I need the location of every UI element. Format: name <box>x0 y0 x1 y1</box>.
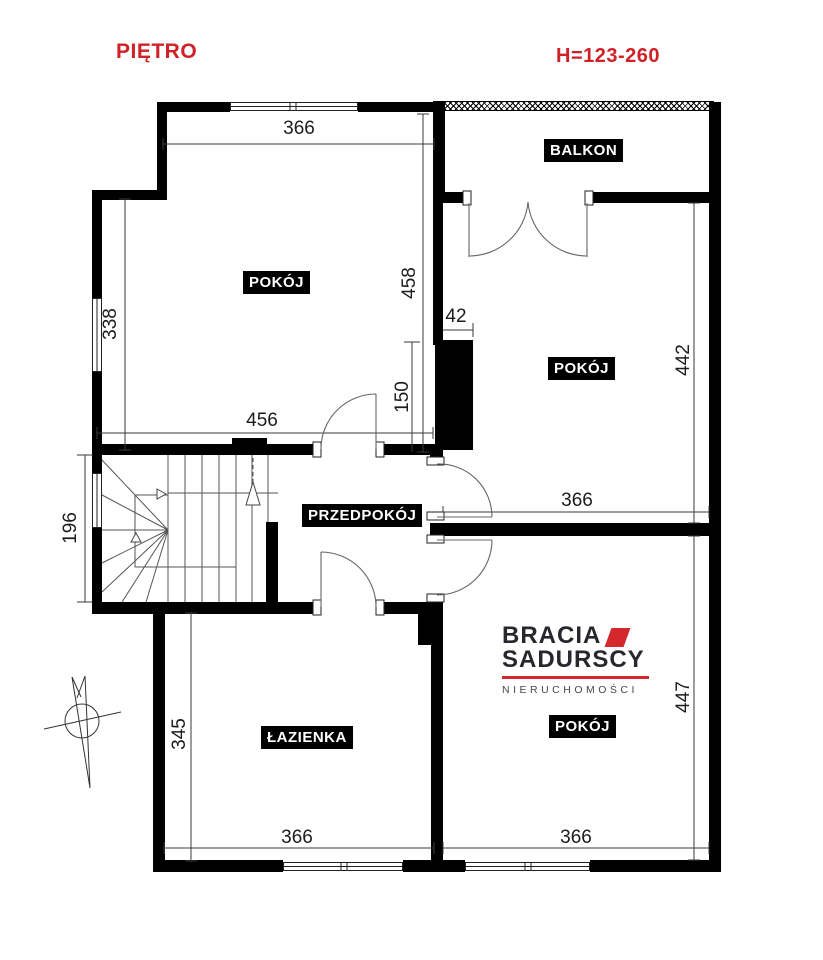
floorplan-linework <box>0 0 823 960</box>
dimension-right-458: 458 <box>399 253 421 313</box>
room-label-lazienka: ŁAZIENKA <box>261 726 353 749</box>
dimension-stairs-196: 196 <box>60 498 82 558</box>
logo-flag-icon <box>605 628 631 647</box>
logo-underline <box>502 676 649 679</box>
dimension-br-366: 366 <box>546 827 606 849</box>
room-label-pokoj-top-left: POKÓJ <box>243 271 310 294</box>
logo-word-nieruchomosci: NIERUCHOMOŚCI <box>502 684 649 696</box>
dimension-bottom-456: 456 <box>232 410 292 432</box>
floorplan-page: PIĘTRO H=123-260 <box>0 0 823 960</box>
room-label-balkon: BALKON <box>544 139 623 162</box>
dimension-chimney-42: 42 <box>426 306 486 328</box>
logo-word-bracia: BRACIA <box>502 624 601 648</box>
ceiling-height-label: H=123-260 <box>556 45 660 68</box>
door-jambs <box>313 191 593 615</box>
room-label-pokoj-bottom-right: POKÓJ <box>549 715 616 738</box>
floor-title: PIĘTRO <box>116 40 197 64</box>
dimension-laz-345: 345 <box>169 704 191 764</box>
dimension-right-150: 150 <box>392 367 414 427</box>
dimension-br-447: 447 <box>673 667 695 727</box>
windows <box>93 103 591 871</box>
dimension-bl-366: 366 <box>267 827 327 849</box>
room-label-pokoj-top-right: POKÓJ <box>548 357 615 380</box>
dimension-tr-442: 442 <box>673 330 695 390</box>
staircase <box>102 455 278 602</box>
dimension-mid-366: 366 <box>547 490 607 512</box>
compass-rose <box>44 676 121 788</box>
agency-logo: BRACIA SADURSCY NIERUCHOMOŚCI <box>502 624 649 696</box>
door-swings <box>321 202 587 607</box>
room-label-przedpokoj: PRZEDPOKÓJ <box>302 504 422 527</box>
dimension-left-338: 338 <box>100 294 122 354</box>
dimension-top-366: 366 <box>269 118 329 140</box>
logo-word-sadurscy: SADURSCY <box>502 648 649 672</box>
